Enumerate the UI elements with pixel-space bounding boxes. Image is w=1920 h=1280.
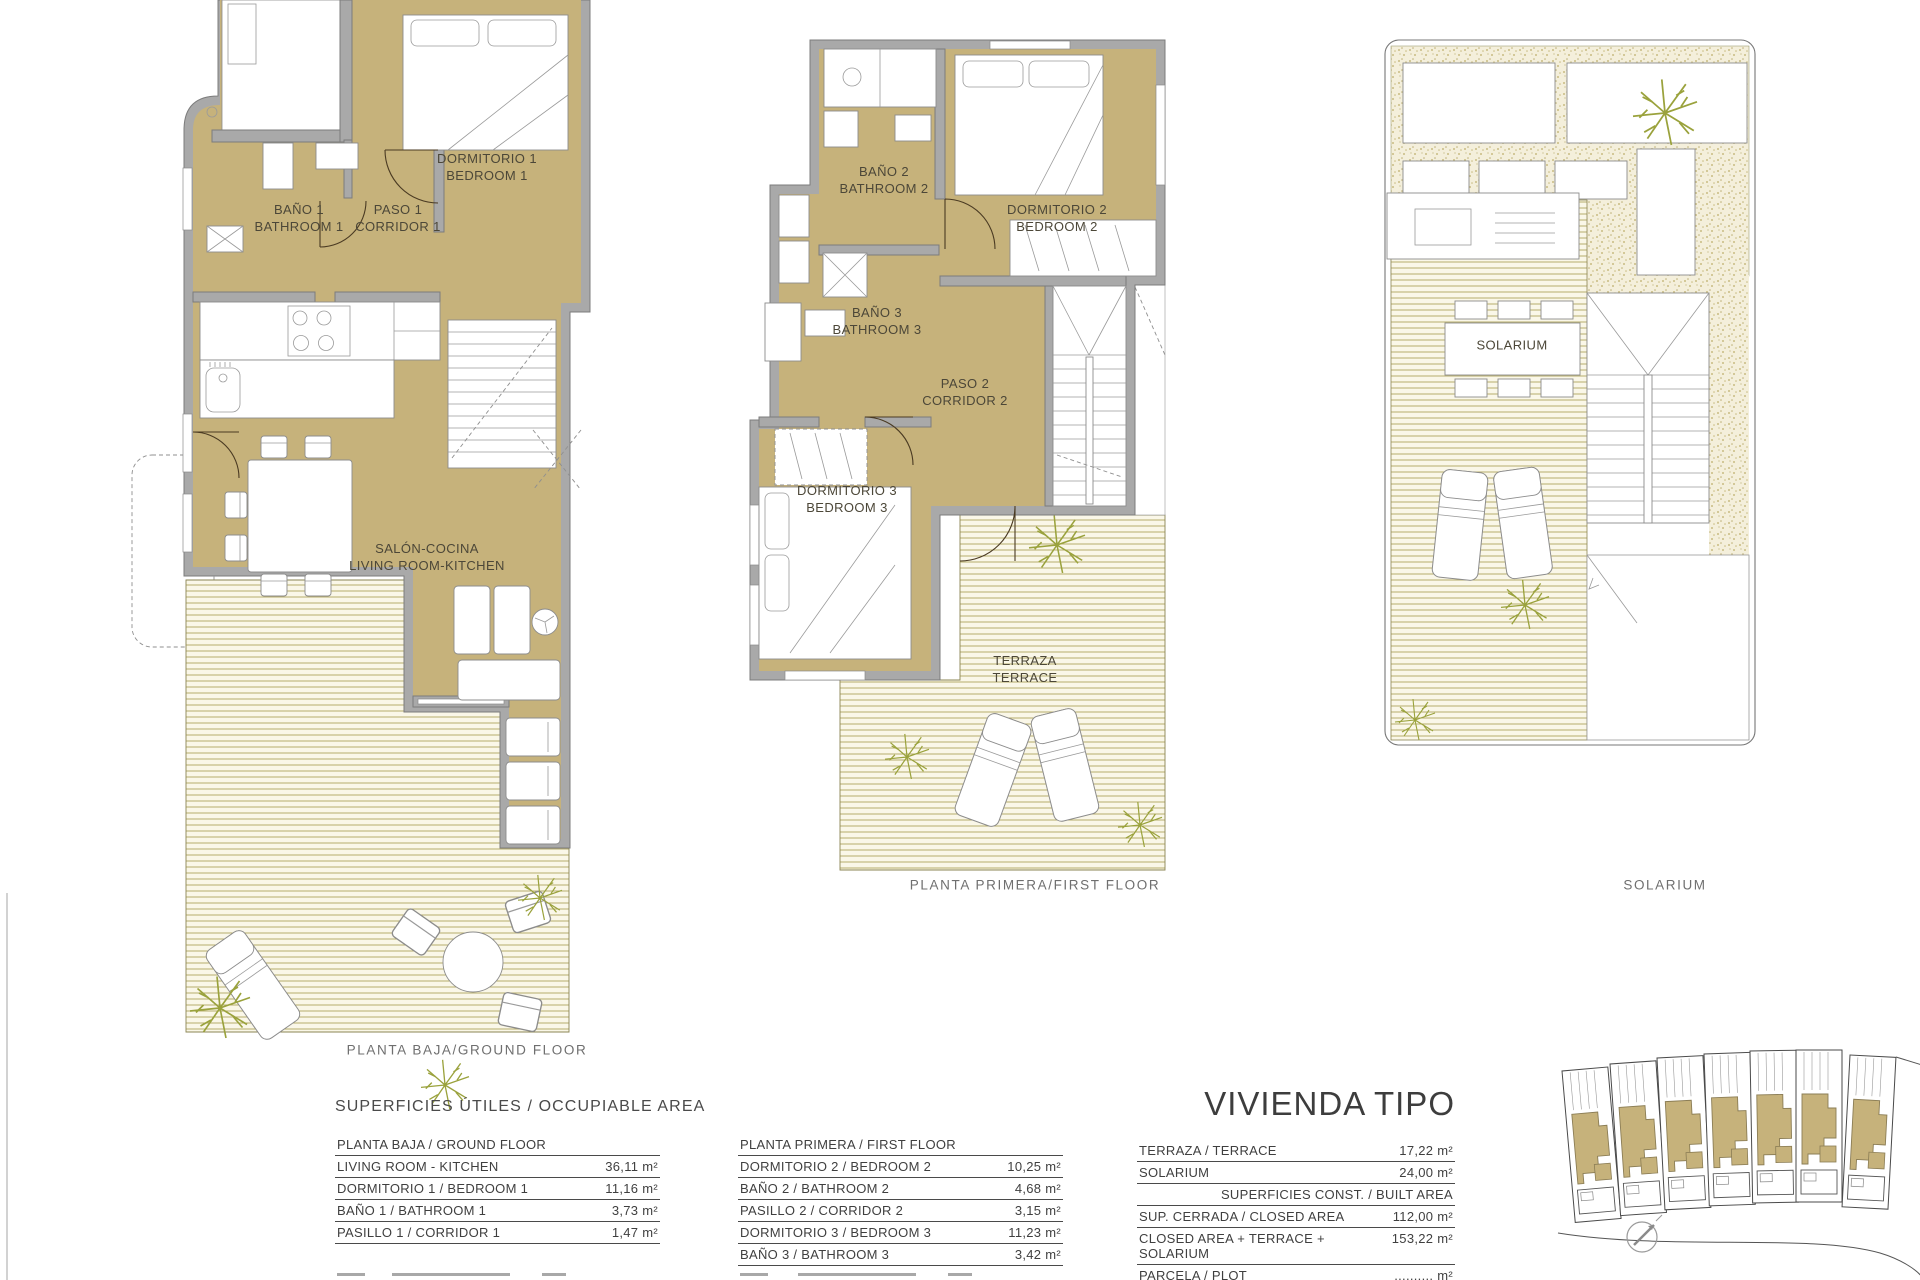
- floor-plan-sheet: BAÑO 1 BATHROOM 1 PASO 1 CORRIDOR 1 DORM…: [0, 0, 1920, 1280]
- label-line: SOLARIUM: [1476, 338, 1547, 353]
- vivienda-area-table: TERRAZA / TERRACE 17,22 m² SOLARIUM 24,0…: [1137, 1140, 1455, 1280]
- site-plan: [1550, 1045, 1920, 1280]
- label-bathroom2: BAÑO 2 BATHROOM 2: [840, 164, 929, 198]
- row-label: BAÑO 2 / BATHROOM 2: [740, 1181, 889, 1196]
- label-line: BAÑO 3: [852, 305, 902, 320]
- label-line: TERRAZA: [993, 653, 1056, 668]
- table-row: BAÑO 1 / BATHROOM 1 3,73 m²: [335, 1200, 660, 1222]
- stairs-first: [1053, 286, 1126, 506]
- label-line: BEDROOM 2: [1016, 219, 1098, 234]
- label-terrace: TERRAZA TERRACE: [993, 653, 1058, 687]
- compass-icon: [1627, 1215, 1662, 1252]
- row-value: 3,15 m²: [1015, 1203, 1061, 1218]
- row-label: TERRAZA / TERRACE: [1139, 1143, 1277, 1158]
- label-line: BATHROOM 3: [833, 322, 922, 337]
- ground-top-room: [222, 0, 340, 130]
- row-label: SOLARIUM: [1139, 1165, 1209, 1180]
- label-bathroom3: BAÑO 3 BATHROOM 3: [833, 305, 922, 339]
- table-row: SUP. CERRADA / CLOSED AREA 112,00 m²: [1137, 1206, 1455, 1228]
- row-value: 10,25 m²: [1007, 1159, 1061, 1174]
- bbq-counter: [1387, 193, 1579, 259]
- table-row: DORMITORIO 1 / BEDROOM 1 11,16 m²: [335, 1178, 660, 1200]
- row-value: .......... m²: [1394, 1268, 1453, 1280]
- row-value: 3,42 m²: [1015, 1247, 1061, 1262]
- row-value: 112,00 m²: [1393, 1209, 1453, 1224]
- ground-floor-plan-drawing: [148, 0, 618, 1065]
- label-line: DORMITORIO 3: [797, 483, 897, 498]
- row-value: 3,73 m²: [612, 1203, 658, 1218]
- label-line: PASO 1: [374, 202, 422, 217]
- first-floor-area-table: PLANTA PRIMERA / FIRST FLOOR DORMITORIO …: [738, 1134, 1063, 1266]
- caption-first-floor: PLANTA PRIMERA/FIRST FLOOR: [910, 878, 1160, 893]
- table-header-row: PLANTA PRIMERA / FIRST FLOOR: [738, 1134, 1063, 1156]
- occupiable-area-title: SUPERFICIES ÚTILES / OCCUPIABLE AREA: [335, 1098, 660, 1116]
- label-line: LIVING ROOM-KITCHEN: [349, 558, 505, 573]
- row-value: 1,47 m²: [612, 1225, 658, 1240]
- bed-bedroom1: [403, 15, 568, 150]
- table-row: BAÑO 3 / BATHROOM 3 3,42 m²: [738, 1244, 1063, 1266]
- table-header: PLANTA PRIMERA / FIRST FLOOR: [740, 1137, 956, 1152]
- caption-ground-floor: PLANTA BAJA/GROUND FLOOR: [347, 1043, 588, 1058]
- label-line: BAÑO 2: [859, 164, 909, 179]
- label-line: BATHROOM 1: [255, 219, 344, 234]
- label-line: CORRIDOR 1: [355, 219, 441, 234]
- table-subheader: SUPERFICIES CONST. / BUILT AREA: [1221, 1187, 1453, 1202]
- row-value: 17,22 m²: [1399, 1143, 1453, 1158]
- row-label: SUP. CERRADA / CLOSED AREA: [1139, 1209, 1345, 1224]
- label-bathroom1: BAÑO 1 BATHROOM 1: [255, 202, 344, 236]
- lower-roof-area: [1587, 555, 1749, 740]
- label-line: CORRIDOR 2: [922, 393, 1008, 408]
- roof-strip: [1135, 285, 1165, 515]
- row-label: PASILLO 2 / CORRIDOR 2: [740, 1203, 903, 1218]
- table-row: PASILLO 2 / CORRIDOR 2 3,15 m²: [738, 1200, 1063, 1222]
- table-row: PARCELA / PLOT .......... m²: [1137, 1265, 1455, 1280]
- caption-solarium: SOLARIUM: [1623, 878, 1706, 893]
- label-bedroom1: DORMITORIO 1 BEDROOM 1: [437, 151, 537, 185]
- label-line: PASO 2: [941, 376, 989, 391]
- label-line: DORMITORIO 1: [437, 151, 537, 166]
- row-label: LIVING ROOM - KITCHEN: [337, 1159, 499, 1174]
- row-label: PASILLO 1 / CORRIDOR 1: [337, 1225, 500, 1240]
- label-living-kitchen: SALÓN-COCINA LIVING ROOM-KITCHEN: [349, 541, 505, 575]
- solarium-plan-drawing: [1375, 25, 1765, 875]
- row-value: 11,16 m²: [605, 1181, 658, 1196]
- table-row: TERRAZA / TERRACE 17,22 m²: [1137, 1140, 1455, 1162]
- page-edge-line: [6, 893, 8, 1280]
- table-row: LIVING ROOM - KITCHEN 36,11 m²: [335, 1156, 660, 1178]
- label-line: DORMITORIO 2: [1007, 202, 1107, 217]
- label-line: BATHROOM 2: [840, 181, 929, 196]
- vivienda-tipo-title: VIVIENDA TIPO: [1137, 1085, 1455, 1123]
- stairs-solarium: [1587, 293, 1709, 523]
- table-row: DORMITORIO 3 / BEDROOM 3 11,23 m²: [738, 1222, 1063, 1244]
- label-line: SALÓN-COCINA: [375, 541, 479, 556]
- label-corridor1: PASO 1 CORRIDOR 1: [355, 202, 441, 236]
- table-row: BAÑO 2 / BATHROOM 2 4,68 m²: [738, 1178, 1063, 1200]
- row-label: BAÑO 1 / BATHROOM 1: [337, 1203, 486, 1218]
- solarium-deck: [1391, 200, 1587, 740]
- table-subheader-row: SUPERFICIES CONST. / BUILT AREA: [1137, 1184, 1455, 1206]
- row-value: 153,22 m²: [1392, 1231, 1453, 1246]
- label-line: BEDROOM 3: [806, 500, 888, 515]
- row-value: 36,11 m²: [605, 1159, 658, 1174]
- row-label: CLOSED AREA + TERRACE + SOLARIUM: [1139, 1231, 1392, 1261]
- table-row: DORMITORIO 2 / BEDROOM 2 10,25 m²: [738, 1156, 1063, 1178]
- table-row: PASILLO 1 / CORRIDOR 1 1,47 m²: [335, 1222, 660, 1244]
- label-bedroom3: DORMITORIO 3 BEDROOM 3: [797, 483, 897, 517]
- table-row: SOLARIUM 24,00 m²: [1137, 1162, 1455, 1184]
- row-label: DORMITORIO 2 / BEDROOM 2: [740, 1159, 931, 1174]
- table-header-row: PLANTA BAJA / GROUND FLOOR: [335, 1134, 660, 1156]
- row-value: 4,68 m²: [1015, 1181, 1061, 1196]
- label-solarium: SOLARIUM: [1476, 338, 1547, 355]
- label-line: BAÑO 1: [274, 202, 324, 217]
- first-floor-plan-drawing: [745, 25, 1175, 875]
- stairs-ground: [448, 320, 556, 468]
- row-label: BAÑO 3 / BATHROOM 3: [740, 1247, 889, 1262]
- ground-floor-area-table: PLANTA BAJA / GROUND FLOOR LIVING ROOM -…: [335, 1134, 660, 1244]
- label-line: TERRACE: [993, 670, 1058, 685]
- label-line: BEDROOM 1: [446, 168, 528, 183]
- label-corridor2: PASO 2 CORRIDOR 2: [922, 376, 1008, 410]
- row-label: PARCELA / PLOT: [1139, 1268, 1247, 1280]
- table-header: PLANTA BAJA / GROUND FLOOR: [337, 1137, 546, 1152]
- row-value: 11,23 m²: [1008, 1225, 1061, 1240]
- row-value: 24,00 m²: [1399, 1165, 1453, 1180]
- site-plots: [1562, 1050, 1896, 1222]
- row-label: DORMITORIO 1 / BEDROOM 1: [337, 1181, 528, 1196]
- row-label: DORMITORIO 3 / BEDROOM 3: [740, 1225, 931, 1240]
- table-row: CLOSED AREA + TERRACE + SOLARIUM 153,22 …: [1137, 1228, 1455, 1265]
- label-bedroom2: DORMITORIO 2 BEDROOM 2: [1007, 202, 1107, 236]
